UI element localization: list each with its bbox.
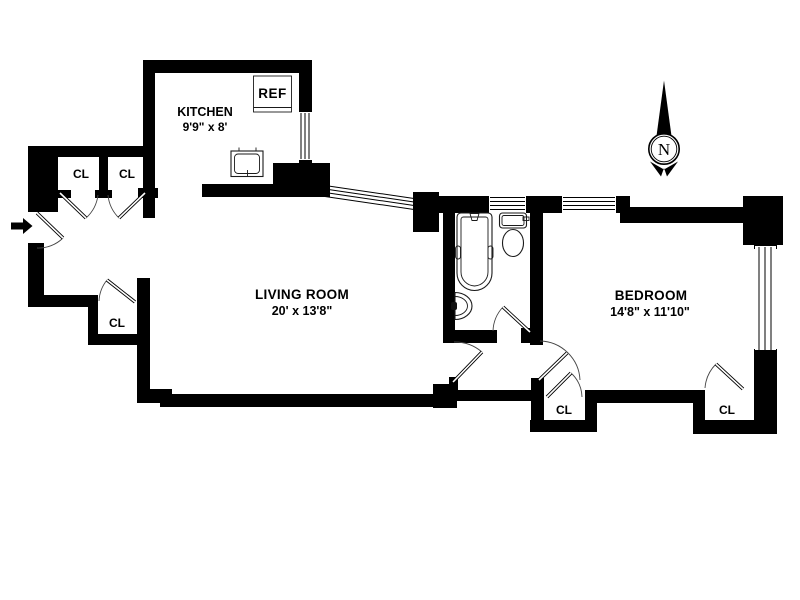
bedroom-label: BEDROOM [615,288,688,303]
door-leaf [37,213,63,238]
toilet-icon [500,213,530,257]
compass-needle [657,81,672,137]
door-leaf [539,353,567,380]
door-arc [108,195,119,218]
door-arc [705,364,716,388]
wall [524,196,565,213]
door-arc [99,280,107,301]
closet1-door-swing-icon [60,193,98,218]
labels: KITCHEN 9'9" x 8' LIVING ROOM 20' x 13'8… [73,86,735,417]
wall [28,243,44,300]
wall [531,378,544,430]
kitchen-label: KITCHEN [177,105,233,119]
bedroom-door-swing-icon [539,341,580,380]
refrigerator-label: REF [258,86,287,101]
entry-arrow-icon [11,218,33,234]
closet-label: CL [73,167,89,181]
living-room-door-swing-icon [453,342,482,382]
entry-door-swing-icon [37,213,63,248]
door-leaf [716,364,743,389]
wall [530,211,543,345]
kitchen-dims: 9'9" x 8' [183,120,228,134]
wall [521,328,543,343]
door-leaf [547,373,571,397]
door-leaf [453,352,482,382]
wall [443,212,455,343]
wall [143,60,312,73]
wall [597,390,703,403]
walls [28,60,783,434]
bathroom-window-icon [489,193,526,213]
door-arc [86,195,98,218]
window-line [325,197,414,210]
door-leaf [119,193,145,218]
closet-label: CL [109,316,125,330]
window-line [325,189,414,202]
wall [693,420,777,434]
wall [430,196,491,213]
compass-north-label: N [658,140,670,159]
wall [28,146,58,212]
door-arc [571,373,582,397]
wall [743,196,783,245]
closet-label: CL [719,403,735,417]
window-line [325,193,414,206]
basin-tap [451,302,457,310]
wall [88,334,143,345]
closet2-door-swing-icon [108,193,145,218]
living-room-label: LIVING ROOM [255,287,349,302]
floor-plan-drawing: N KITCHEN 9'9" x 8' LIVING ROOM 20' x 13… [0,0,800,600]
wall [148,389,172,403]
kitchen-window-icon [297,112,313,160]
living-room-dims: 20' x 13'8" [272,304,333,318]
door-arc [454,342,482,352]
bedroom-top-window-icon [562,193,616,213]
bathroom-door-swing-icon [493,307,530,332]
door-arc [493,307,503,331]
wall [299,73,312,114]
door-leaf [107,280,135,302]
toilet-bowl [503,230,524,257]
wall [273,163,330,197]
kitchen-sink-icon [231,148,263,178]
door-leaf [60,193,86,218]
bedroom-closet-right-door-swing-icon [705,364,743,389]
wall [160,394,433,407]
diagonal-window-icon [325,186,414,210]
closet-label: CL [556,403,572,417]
closet-label: CL [119,167,135,181]
wall [620,207,745,223]
wall [202,184,273,197]
bedroom-closet-left-door-swing-icon [547,373,582,397]
bedroom-right-window-icon [755,246,776,350]
window-line [325,186,414,199]
north-compass-icon: N [649,81,679,177]
bathtub-icon [456,213,494,291]
floor-plan-page: N KITCHEN 9'9" x 8' LIVING ROOM 20' x 13… [0,0,800,600]
bedroom-dims: 14'8" x 11'10" [610,305,690,319]
hall-closet-door-swing-icon [99,280,135,302]
door-leaf [503,307,530,332]
